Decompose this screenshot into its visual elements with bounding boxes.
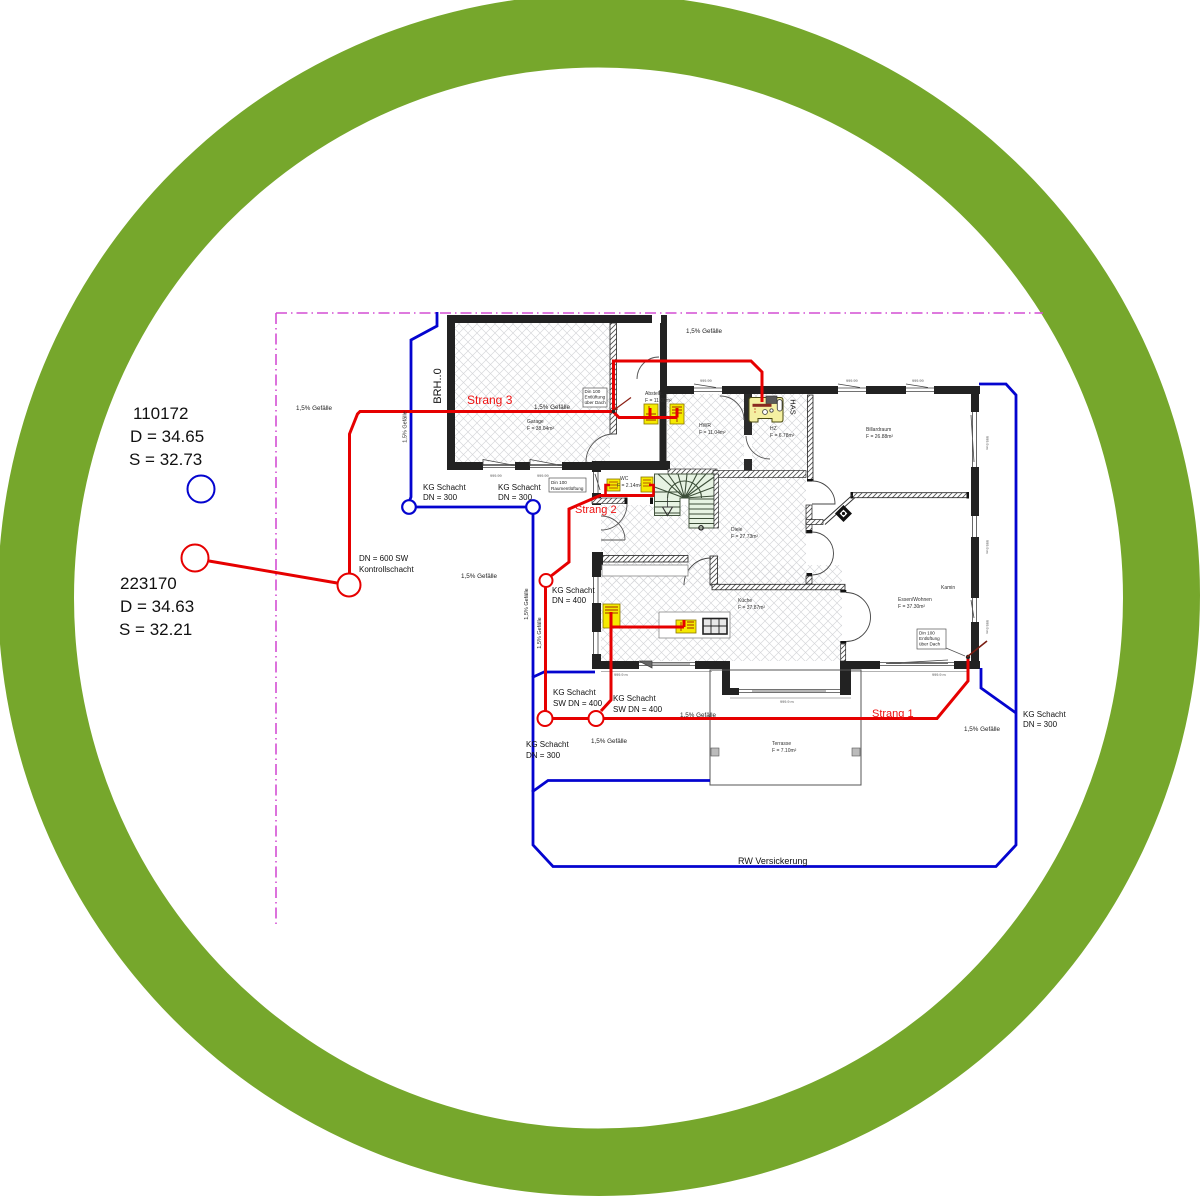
svg-text:DN = 600 SW: DN = 600 SW xyxy=(359,554,409,563)
svg-text:F = 26.88m²: F = 26.88m² xyxy=(866,434,893,440)
svg-text:DN = 300: DN = 300 xyxy=(498,493,533,502)
svg-text:KG Schacht: KG Schacht xyxy=(1023,710,1066,719)
svg-text:über Dach: über Dach xyxy=(585,400,607,405)
svg-text:Strang 1: Strang 1 xyxy=(872,708,914,720)
svg-text:Terrasse: Terrasse xyxy=(772,741,791,747)
svg-text:SW DN = 400: SW DN = 400 xyxy=(553,699,603,708)
svg-text:223170: 223170 xyxy=(120,574,177,593)
svg-text:Din 100: Din 100 xyxy=(585,389,601,394)
svg-text:999.99: 999.99 xyxy=(537,474,549,478)
svg-text:999.9 m: 999.9 m xyxy=(985,540,989,554)
svg-text:Kamin: Kamin xyxy=(941,585,955,591)
svg-text:999.9 m: 999.9 m xyxy=(614,673,628,677)
svg-text:Strang 3: Strang 3 xyxy=(467,393,513,407)
svg-text:HAS: HAS xyxy=(789,399,798,414)
svg-text:S = 32.21: S = 32.21 xyxy=(119,620,192,639)
svg-text:DN = 300: DN = 300 xyxy=(526,751,561,760)
svg-text:F = 11.04m²: F = 11.04m² xyxy=(699,430,726,436)
svg-text:1,5% Gefälle: 1,5% Gefälle xyxy=(534,404,571,411)
svg-text:über Dach: über Dach xyxy=(919,642,941,647)
svg-text:999.9 m: 999.9 m xyxy=(780,700,794,704)
svg-text:110172: 110172 xyxy=(133,404,188,423)
svg-text:RW Versickerung: RW Versickerung xyxy=(738,856,807,866)
svg-text:Entlüftung: Entlüftung xyxy=(919,636,940,641)
svg-text:F = 2.14m²: F = 2.14m² xyxy=(617,483,642,489)
svg-text:F = 37.30m²: F = 37.30m² xyxy=(898,604,925,610)
svg-text:1,5% Gefälle: 1,5% Gefälle xyxy=(686,328,723,335)
svg-text:Strang 2: Strang 2 xyxy=(575,504,617,516)
svg-text:999.9 m: 999.9 m xyxy=(985,436,989,450)
svg-text:S = 32.73: S = 32.73 xyxy=(129,450,202,469)
svg-text:999.99: 999.99 xyxy=(912,379,924,383)
svg-text:KG Schacht: KG Schacht xyxy=(498,483,541,492)
svg-text:D = 34.63: D = 34.63 xyxy=(120,597,194,616)
svg-text:Din 100: Din 100 xyxy=(919,631,935,636)
svg-text:BRH..0: BRH..0 xyxy=(432,368,444,403)
svg-text:Billardraum: Billardraum xyxy=(866,427,891,433)
svg-text:F = 38.04m²: F = 38.04m² xyxy=(527,426,554,432)
svg-text:DN = 400: DN = 400 xyxy=(552,596,587,605)
svg-text:F = 27.73m²: F = 27.73m² xyxy=(731,534,758,540)
svg-text:1,5% Gefälle: 1,5% Gefälle xyxy=(537,617,543,649)
svg-text:KG Schacht: KG Schacht xyxy=(613,694,656,703)
svg-text:999.99: 999.99 xyxy=(490,474,502,478)
svg-text:Abstellr.: Abstellr. xyxy=(645,391,663,397)
svg-text:DN = 300: DN = 300 xyxy=(423,493,458,502)
svg-text:KG Schacht: KG Schacht xyxy=(526,740,569,749)
svg-text:Essen/Wohnen: Essen/Wohnen xyxy=(898,597,932,603)
svg-text:Kontrollschacht: Kontrollschacht xyxy=(359,565,414,574)
svg-text:F = 37.87m²: F = 37.87m² xyxy=(738,605,765,611)
svg-text:Garage: Garage xyxy=(527,419,544,425)
svg-text:KG Schacht: KG Schacht xyxy=(423,483,466,492)
svg-text:1,5% Gefälle: 1,5% Gefälle xyxy=(296,405,333,412)
svg-text:1,5% Gefälle: 1,5% Gefälle xyxy=(524,588,530,620)
svg-text:HWR: HWR xyxy=(699,423,711,429)
svg-text:1,5% Gefälle: 1,5% Gefälle xyxy=(461,573,498,580)
svg-text:Entlüftung: Entlüftung xyxy=(585,395,606,400)
svg-text:Küche: Küche xyxy=(738,598,752,604)
svg-text:1,5% Gefälle: 1,5% Gefälle xyxy=(680,712,717,719)
svg-text:999.99: 999.99 xyxy=(846,379,858,383)
svg-text:999.99: 999.99 xyxy=(700,379,712,383)
svg-text:Diele: Diele xyxy=(731,527,743,533)
svg-text:1,5% Gefälle: 1,5% Gefälle xyxy=(591,738,628,745)
svg-text:Raumentlüftung: Raumentlüftung xyxy=(551,486,584,491)
svg-text:D = 34.65: D = 34.65 xyxy=(130,427,204,446)
svg-text:HZ: HZ xyxy=(770,426,777,432)
svg-text:1,5% Gefälle: 1,5% Gefälle xyxy=(403,411,409,443)
svg-text:Din 100: Din 100 xyxy=(551,480,567,485)
svg-text:KG Schacht: KG Schacht xyxy=(552,586,595,595)
svg-text:999.9 m: 999.9 m xyxy=(985,620,989,634)
svg-text:WC: WC xyxy=(620,476,629,482)
svg-text:F = 7.10m²: F = 7.10m² xyxy=(772,748,797,754)
svg-text:F = 6.78m²: F = 6.78m² xyxy=(770,433,795,439)
svg-text:DN = 300: DN = 300 xyxy=(1023,720,1058,729)
svg-text:SW DN = 400: SW DN = 400 xyxy=(613,705,663,714)
svg-text:999.9 m: 999.9 m xyxy=(932,673,946,677)
svg-text:KG Schacht: KG Schacht xyxy=(553,688,596,697)
svg-text:1,5% Gefälle: 1,5% Gefälle xyxy=(964,726,1001,733)
svg-text:F = 11.00m²: F = 11.00m² xyxy=(645,398,672,404)
